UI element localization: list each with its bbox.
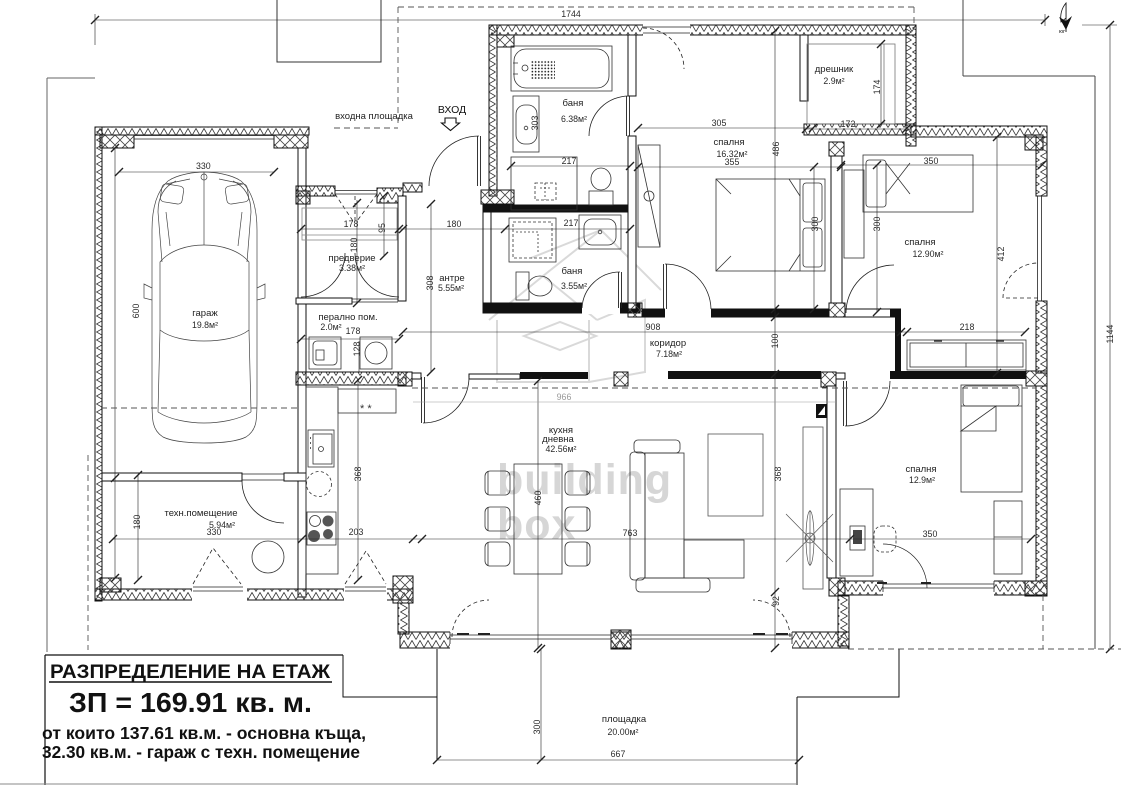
svg-text:3.55м²: 3.55м² (561, 281, 587, 291)
svg-text:300: 300 (810, 217, 820, 232)
svg-text:100: 100 (770, 334, 780, 349)
svg-text:178: 178 (346, 326, 361, 336)
svg-text:180: 180 (349, 238, 359, 253)
svg-text:* *: * * (360, 403, 372, 415)
svg-text:спалня: спалня (713, 137, 744, 148)
svg-text:172: 172 (841, 119, 856, 129)
svg-text:95: 95 (377, 223, 387, 233)
svg-text:гараж: гараж (192, 308, 218, 319)
svg-text:дрешник: дрешник (815, 64, 854, 75)
svg-text:667: 667 (611, 749, 626, 759)
svg-text:174: 174 (872, 80, 882, 95)
svg-text:42.56м²: 42.56м² (546, 444, 577, 454)
svg-text:330: 330 (207, 527, 222, 537)
svg-text:ВХОД: ВХОД (438, 104, 466, 116)
svg-text:308: 308 (425, 276, 435, 291)
svg-text:2.9м²: 2.9м² (823, 76, 844, 86)
svg-text:350: 350 (923, 529, 938, 539)
svg-text:180: 180 (132, 515, 142, 530)
svg-text:966: 966 (557, 392, 572, 402)
svg-text:460: 460 (533, 491, 543, 506)
svg-text:908: 908 (646, 322, 661, 332)
svg-text:входна площадка: входна площадка (335, 111, 414, 122)
svg-text:5.55м²: 5.55м² (438, 283, 464, 293)
svg-text:218: 218 (960, 322, 975, 332)
svg-text:368: 368 (773, 467, 783, 482)
svg-text:305: 305 (712, 118, 727, 128)
svg-text:330: 330 (196, 161, 211, 171)
svg-text:площадка: площадка (602, 714, 647, 725)
svg-text:368: 368 (353, 467, 363, 482)
svg-text:12.9м²: 12.9м² (909, 475, 935, 485)
svg-text:300: 300 (532, 720, 542, 735)
svg-text:32.30 кв.м. - гараж с техн. по: 32.30 кв.м. - гараж с техн. помещение (42, 742, 360, 762)
svg-text:баня: баня (563, 98, 584, 109)
svg-text:коридор: коридор (650, 338, 686, 349)
svg-text:юг: юг (1059, 29, 1065, 35)
svg-text:128: 128 (352, 342, 362, 357)
svg-text:1744: 1744 (561, 9, 581, 19)
svg-text:баня: баня (562, 266, 583, 277)
svg-text:486: 486 (771, 142, 781, 157)
svg-text:3.38м²: 3.38м² (339, 263, 365, 273)
svg-text:6.38м²: 6.38м² (561, 114, 587, 124)
svg-text:1144: 1144 (1105, 324, 1115, 343)
svg-text:12.90м²: 12.90м² (913, 249, 944, 259)
svg-text:РАЗПРЕДЕЛЕНИЕ НА ЕТАЖ: РАЗПРЕДЕЛЕНИЕ НА ЕТАЖ (50, 661, 330, 683)
svg-text:350: 350 (924, 156, 939, 166)
svg-text:от които 137.61 кв.м. - основ: от които 137.61 кв.м. - основна къща, (42, 723, 366, 743)
svg-text:2.0м²: 2.0м² (320, 322, 341, 332)
svg-text:20.00м²: 20.00м² (608, 727, 639, 737)
svg-text:303: 303 (530, 116, 540, 131)
svg-text:217: 217 (562, 156, 577, 166)
svg-text:763: 763 (623, 528, 638, 538)
svg-text:92: 92 (771, 596, 781, 606)
svg-text:техн.помещение: техн.помещение (164, 508, 237, 519)
svg-text:building: building (497, 456, 672, 504)
svg-text:217: 217 (564, 218, 579, 228)
svg-text:180: 180 (447, 219, 462, 229)
svg-text:box: box (497, 501, 576, 549)
svg-text:300: 300 (872, 217, 882, 232)
svg-text:19.8м²: 19.8м² (192, 320, 218, 330)
svg-text:178: 178 (344, 219, 359, 229)
svg-text:412: 412 (996, 247, 1006, 262)
svg-text:спалня: спалня (905, 464, 936, 475)
svg-text:ЗП = 169.91 кв. м.: ЗП = 169.91 кв. м. (69, 687, 312, 718)
svg-text:355: 355 (725, 157, 740, 167)
svg-text:7.18м²: 7.18м² (656, 349, 682, 359)
svg-text:203: 203 (349, 527, 364, 537)
svg-text:спалня: спалня (904, 237, 935, 248)
svg-text:600: 600 (131, 304, 141, 319)
